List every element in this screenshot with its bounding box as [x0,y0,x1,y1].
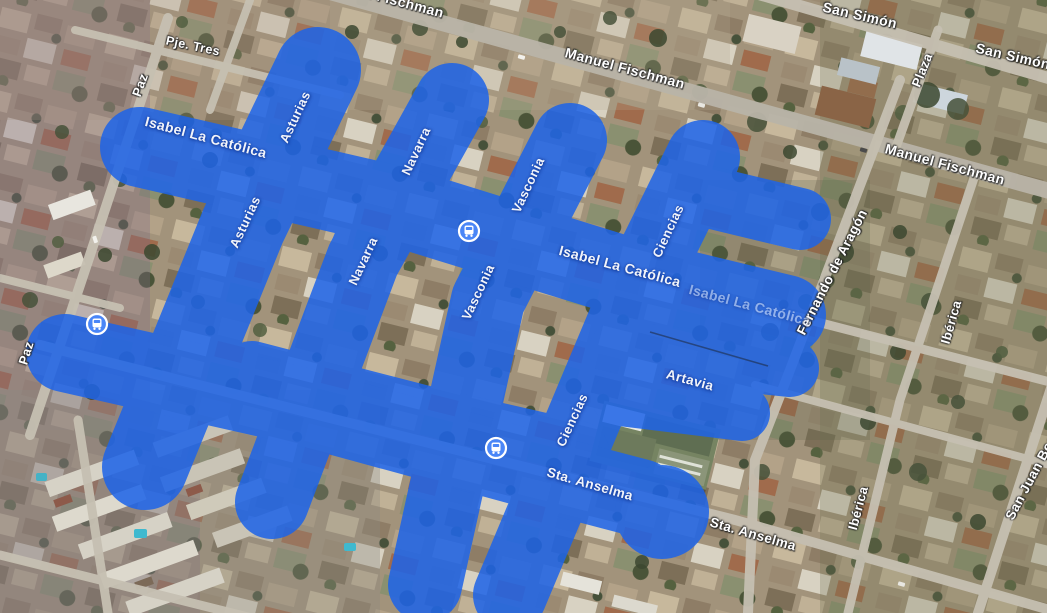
overlay-north-stub [688,192,800,219]
bus-stop-icon[interactable] [457,219,481,243]
bus-stop-icon[interactable] [484,436,508,460]
overlay-artavia-south-stub [620,398,742,413]
coverage-overlay-layer [0,0,1047,613]
bus-stop-icon[interactable] [85,312,109,336]
overlay-east-lobe [615,465,709,559]
highlighted-area-overlay [65,70,800,595]
map-canvas[interactable]: Manuel FischmanManuel FischmanManuel Fis… [0,0,1047,613]
